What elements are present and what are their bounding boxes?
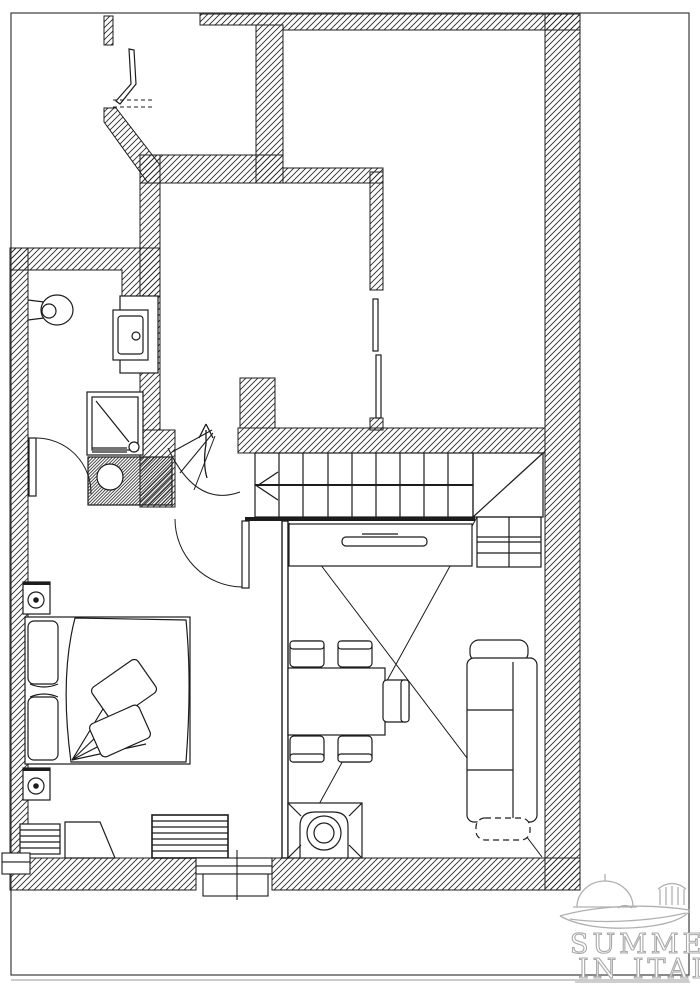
wall-bigroom-left	[256, 25, 283, 183]
wall-bottom-left	[10, 858, 196, 890]
stove	[288, 803, 362, 858]
dining-chair	[338, 736, 372, 762]
wardrobe	[65, 822, 115, 858]
up-arrow	[199, 424, 213, 478]
radiator	[20, 824, 60, 854]
sofa	[467, 640, 537, 840]
bedroom-door	[175, 519, 249, 588]
wall-entry-stub	[104, 16, 113, 45]
shower	[87, 392, 143, 455]
wall-right	[545, 14, 580, 890]
watermark-line2: IN ITALY	[578, 954, 700, 985]
dining-chair	[290, 641, 324, 667]
dining-table	[288, 668, 385, 735]
dresser	[152, 815, 228, 858]
stair-landing-square	[473, 453, 543, 517]
floor-plan-page: SUMMER IN ITALY	[0, 0, 700, 991]
bedroom	[20, 582, 228, 858]
entry-gate	[113, 49, 152, 107]
wall-bath-top	[10, 248, 160, 296]
wall-left	[10, 248, 28, 858]
toilet	[28, 295, 73, 325]
nightstand-bottom	[23, 768, 50, 800]
dining-chair	[383, 680, 409, 722]
floor-plan-drawing: SUMMER IN ITALY	[0, 0, 700, 991]
sink	[113, 296, 158, 373]
watermark-logo: SUMMER IN ITALY	[560, 874, 700, 985]
wall-rightroom-left	[370, 172, 383, 290]
wall-band-middle	[283, 168, 383, 183]
wall-middleroom-left	[140, 155, 160, 430]
dining-chair	[338, 641, 372, 667]
entry-gate-leaf	[116, 49, 136, 104]
bathroom	[28, 295, 158, 455]
wall-chimney-stub	[240, 378, 275, 428]
stair-edge-bold	[245, 517, 475, 521]
washbasin-column	[88, 457, 172, 505]
double-bed	[25, 617, 190, 764]
bathroom-door	[29, 438, 91, 496]
wall-entry-diagonal	[104, 108, 160, 183]
under-stair-cupboard	[477, 517, 541, 567]
living-room	[288, 517, 542, 858]
window	[196, 850, 272, 900]
wall-bottom-right	[272, 858, 580, 890]
exterior-steps	[2, 853, 30, 874]
living-room-partition	[282, 521, 288, 858]
dining-chair	[290, 736, 324, 762]
nightstand-top	[23, 582, 50, 614]
double-door	[373, 299, 381, 418]
sideboard	[289, 524, 472, 566]
wall-over-stairs	[238, 428, 545, 453]
stair-treads	[255, 453, 473, 517]
